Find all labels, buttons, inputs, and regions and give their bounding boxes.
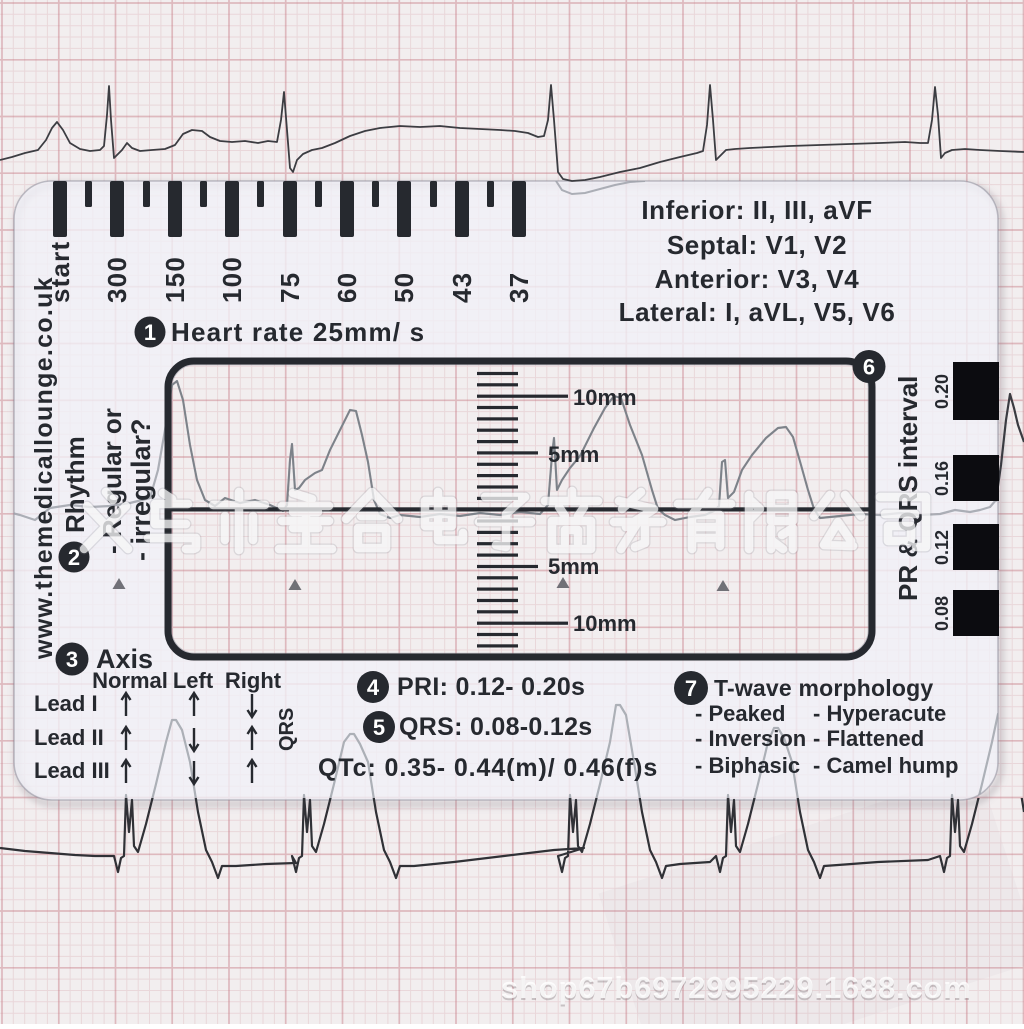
svg-text:T-wave morphology: T-wave morphology: [714, 675, 933, 701]
svg-text:Lead II: Lead II: [34, 725, 104, 750]
svg-text:10mm: 10mm: [573, 385, 637, 410]
svg-text:60: 60: [332, 272, 362, 303]
svg-text:43: 43: [447, 272, 477, 303]
svg-text:150: 150: [160, 256, 190, 303]
svg-text:QRS: 0.08-0.12s: QRS: 0.08-0.12s: [399, 713, 593, 741]
svg-text:Rhythm: Rhythm: [60, 436, 90, 533]
svg-text:Normal: Normal: [92, 668, 168, 693]
svg-text:3: 3: [66, 647, 78, 672]
svg-text:Left: Left: [173, 668, 214, 693]
svg-text:0.08: 0.08: [932, 596, 952, 631]
svg-text:5mm: 5mm: [548, 554, 599, 579]
svg-text:Inferior: II, III, aVF: Inferior: II, III, aVF: [641, 195, 872, 225]
svg-text:Right: Right: [225, 668, 282, 693]
svg-text:Anterior: V3, V4: Anterior: V3, V4: [655, 264, 860, 294]
svg-text:0.20: 0.20: [932, 374, 952, 409]
svg-text:10mm: 10mm: [573, 611, 637, 636]
svg-text:- Hyperacute: - Hyperacute: [813, 701, 946, 726]
svg-text:QRS: QRS: [276, 708, 298, 751]
svg-text:2: 2: [68, 545, 80, 570]
svg-text:Septal: V1, V2: Septal: V1, V2: [667, 230, 847, 260]
svg-text:6: 6: [863, 355, 875, 380]
svg-text:- Inversion: - Inversion: [695, 726, 806, 751]
svg-text:- Biphasic: - Biphasic: [695, 753, 800, 778]
svg-text:- Camel hump: - Camel hump: [813, 753, 958, 778]
svg-text:PRI: 0.12- 0.20s: PRI: 0.12- 0.20s: [397, 673, 585, 701]
svg-text:300: 300: [102, 256, 132, 303]
svg-text:50: 50: [389, 272, 419, 303]
svg-text:4: 4: [367, 675, 380, 700]
svg-text:Heart rate 25mm/ s: Heart rate 25mm/ s: [171, 317, 425, 347]
svg-text:PR & QRS interval: PR & QRS interval: [893, 376, 923, 601]
svg-text:0.16: 0.16: [932, 461, 952, 496]
svg-text:7: 7: [685, 676, 697, 701]
svg-text:Lead III: Lead III: [34, 758, 110, 783]
svg-text:1: 1: [144, 320, 156, 345]
svg-text:75: 75: [275, 272, 305, 303]
svg-text:Lateral: I, aVL, V5, V6: Lateral: I, aVL, V5, V6: [619, 297, 896, 327]
svg-text:37: 37: [504, 272, 534, 303]
svg-text:shop67b6972995229.1688.com: shop67b6972995229.1688.com: [501, 970, 972, 1005]
svg-text:100: 100: [217, 256, 247, 303]
svg-text:0.12: 0.12: [932, 530, 952, 565]
svg-text:5: 5: [373, 715, 385, 740]
svg-text:- Flattened: - Flattened: [813, 726, 924, 751]
svg-text:- Peaked: - Peaked: [695, 701, 786, 726]
svg-text:QTc: 0.35- 0.44(m)/ 0.46(f)s: QTc: 0.35- 0.44(m)/ 0.46(f)s: [318, 754, 658, 782]
svg-text:Lead I: Lead I: [34, 691, 98, 716]
svg-text:www.themedicallounge.co.uk: www.themedicallounge.co.uk: [30, 276, 58, 660]
svg-text:5mm: 5mm: [548, 442, 599, 467]
